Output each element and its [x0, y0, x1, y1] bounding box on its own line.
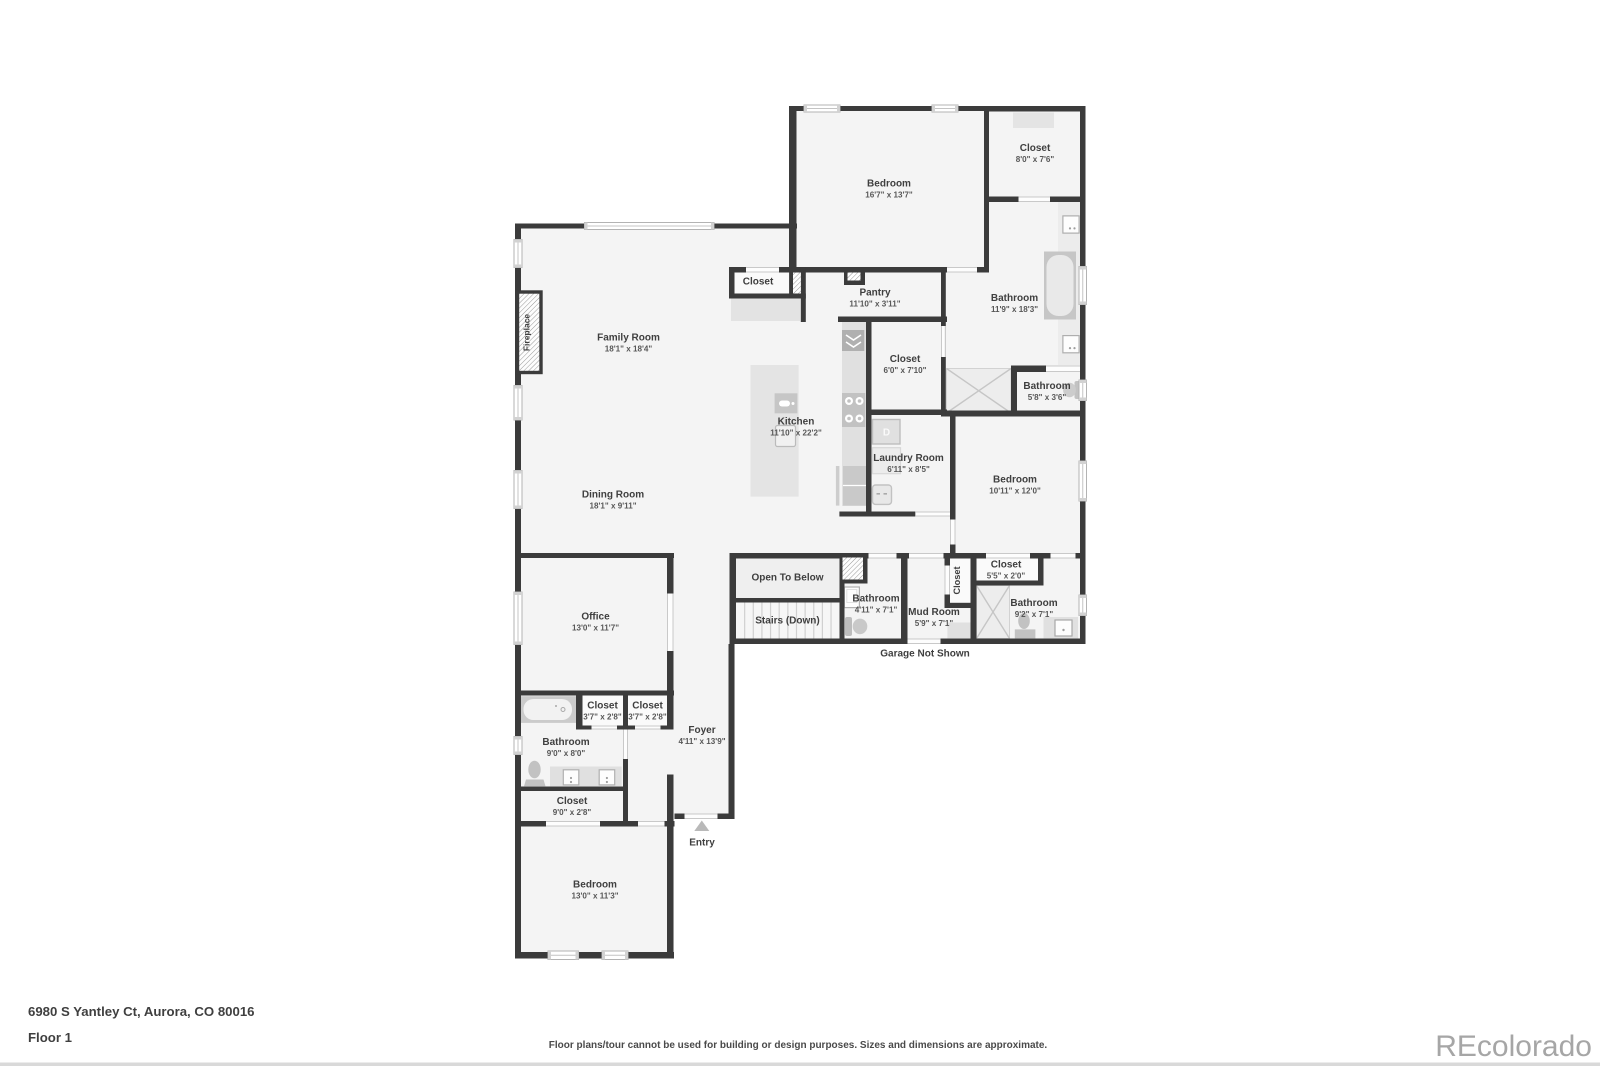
svg-text:10'11" x 12'0": 10'11" x 12'0" — [989, 487, 1041, 496]
svg-text:Bedroom: Bedroom — [867, 179, 911, 190]
svg-text:5'9" x 7'1": 5'9" x 7'1" — [915, 619, 954, 628]
svg-text:11'10" x 22'2": 11'10" x 22'2" — [770, 429, 822, 438]
svg-text:Bathroom: Bathroom — [542, 737, 589, 748]
svg-text:Mud Room: Mud Room — [908, 607, 960, 618]
svg-text:11'10" x 3'11": 11'10" x 3'11" — [849, 300, 900, 309]
svg-text:Closet: Closet — [743, 277, 774, 288]
svg-text:Closet: Closet — [557, 796, 588, 807]
svg-text:4'11" x 7'1": 4'11" x 7'1" — [855, 606, 898, 615]
svg-text:Closet: Closet — [587, 701, 618, 712]
svg-text:4'11" x 13'9": 4'11" x 13'9" — [678, 737, 725, 746]
svg-text:9'2" x 7'1": 9'2" x 7'1" — [1015, 610, 1054, 619]
svg-text:Closet: Closet — [952, 566, 962, 594]
svg-text:Entry: Entry — [689, 838, 715, 849]
svg-text:16'7" x 13'7": 16'7" x 13'7" — [865, 191, 913, 200]
svg-text:Fireplace: Fireplace — [522, 314, 532, 352]
svg-text:Bedroom: Bedroom — [573, 880, 617, 891]
svg-text:Office: Office — [581, 612, 610, 623]
svg-text:Bedroom: Bedroom — [993, 475, 1037, 486]
svg-text:Garage Not Shown: Garage Not Shown — [880, 649, 969, 660]
svg-text:13'0" x 11'3": 13'0" x 11'3" — [571, 892, 618, 901]
svg-text:Floor 1: Floor 1 — [28, 1030, 72, 1045]
svg-text:11'9" x 18'3": 11'9" x 18'3" — [991, 305, 1038, 314]
svg-text:8'0" x 7'6": 8'0" x 7'6" — [1016, 155, 1055, 164]
svg-text:Family Room: Family Room — [597, 333, 660, 344]
svg-text:Bathroom: Bathroom — [1010, 598, 1057, 609]
svg-text:Floor plans/tour cannot be use: Floor plans/tour cannot be used for buil… — [549, 1040, 1048, 1051]
svg-text:Stairs (Down): Stairs (Down) — [755, 616, 819, 627]
svg-text:5'8" x 3'6": 5'8" x 3'6" — [1028, 393, 1067, 402]
svg-text:D: D — [883, 428, 890, 439]
svg-text:Open To Below: Open To Below — [751, 573, 823, 584]
svg-text:3'7" x 2'8": 3'7" x 2'8" — [583, 713, 622, 722]
svg-text:Closet: Closet — [890, 354, 921, 365]
svg-text:Bathroom: Bathroom — [852, 594, 899, 605]
svg-text:3'7" x 2'8": 3'7" x 2'8" — [628, 713, 667, 722]
svg-text:9'0" x 8'0": 9'0" x 8'0" — [547, 749, 586, 758]
svg-text:Bathroom: Bathroom — [991, 293, 1038, 304]
svg-text:13'0" x 11'7": 13'0" x 11'7" — [572, 624, 619, 633]
svg-text:Dining Room: Dining Room — [582, 490, 644, 501]
svg-text:5'5" x 2'0": 5'5" x 2'0" — [987, 572, 1026, 581]
svg-text:Closet: Closet — [1020, 143, 1051, 154]
svg-text:Bathroom: Bathroom — [1023, 381, 1070, 392]
svg-text:Laundry Room: Laundry Room — [873, 453, 944, 464]
svg-text:18'1" x 9'11": 18'1" x 9'11" — [589, 502, 636, 511]
svg-text:6'11" x 8'5": 6'11" x 8'5" — [887, 465, 930, 474]
svg-text:18'1" x 18'4": 18'1" x 18'4" — [605, 345, 653, 354]
svg-text:Foyer: Foyer — [688, 725, 715, 736]
svg-text:Kitchen: Kitchen — [778, 417, 815, 428]
svg-text:6'0" x 7'10": 6'0" x 7'10" — [883, 366, 926, 375]
svg-text:REcolorado: REcolorado — [1435, 1030, 1592, 1063]
svg-text:Closet: Closet — [991, 560, 1022, 571]
svg-text:Pantry: Pantry — [859, 288, 891, 299]
svg-text:6980 S Yantley Ct, Aurora, CO: 6980 S Yantley Ct, Aurora, CO 80016 — [28, 1004, 255, 1019]
svg-text:9'0" x 2'8": 9'0" x 2'8" — [553, 808, 592, 817]
svg-text:Closet: Closet — [632, 701, 663, 712]
